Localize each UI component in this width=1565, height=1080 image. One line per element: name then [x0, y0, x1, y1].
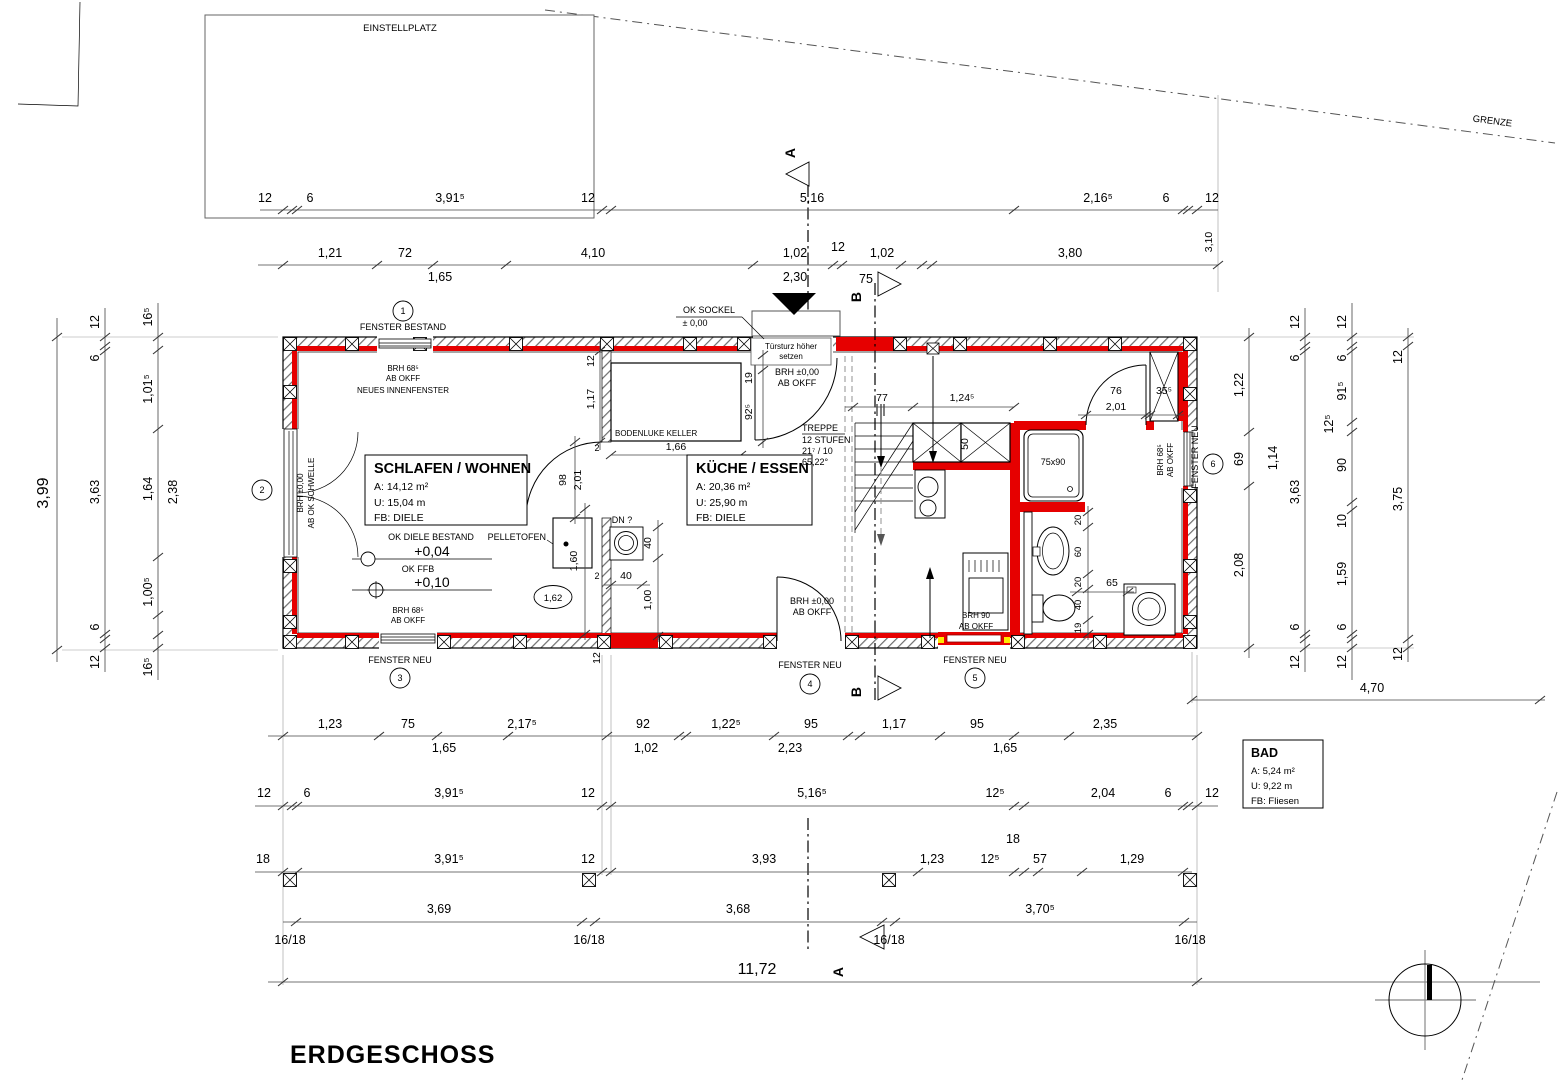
dim-label: 18 [256, 852, 270, 866]
dim-label: 1,02 [634, 741, 658, 755]
room-perimeter: U: 9,22 m [1251, 781, 1292, 792]
dim-label: 2,38 [166, 480, 180, 504]
dim-label: 12 [581, 191, 595, 205]
stair-label: 12 STUFEN [802, 435, 851, 445]
sill-label: BRH ±0,00 [775, 367, 819, 377]
dim-label: 16⁵ [141, 307, 155, 326]
room-floor: FB: DIELE [374, 512, 424, 524]
dim-total-label: 11,72 [738, 961, 777, 978]
dim-label: 12 [585, 355, 597, 367]
dim-label: 3,63 [1288, 480, 1302, 504]
window-1 [379, 339, 431, 348]
window-3 [381, 634, 435, 643]
dim-label: 1,65 [432, 741, 456, 755]
dim-label: 40 [642, 537, 654, 549]
section-b-label: B [848, 687, 864, 697]
sill-label: AB OKFF [1166, 443, 1175, 477]
dim-label: 40 [620, 570, 632, 582]
dim-label: 1,21 [318, 246, 342, 260]
dim-label: 95 [970, 717, 984, 731]
dim-label: 6 [1288, 623, 1302, 630]
dim-label: 3,93 [752, 852, 776, 866]
sill-label: BRH 90 [962, 611, 991, 620]
sill-label: AB OK SCHWELLE [307, 458, 316, 529]
dim-label: 2,23 [778, 741, 802, 755]
dim-label: 1,22⁵ [711, 717, 741, 731]
dim-label: 92 [636, 717, 650, 731]
marker-number: 1 [400, 306, 405, 316]
dim-label: 3,63 [88, 480, 102, 504]
new-inner-window-label: NEUES INNENFENSTER [357, 386, 449, 395]
dim-label: 12 [258, 191, 272, 205]
dim-label: 1,65 [428, 270, 452, 284]
plinth-label: ± 0,00 [683, 318, 708, 328]
dim-label: 12 [1288, 655, 1302, 669]
dim-label: 1,66 [666, 441, 687, 453]
post-size-label: 16/18 [573, 933, 604, 947]
dim-label: 1,24⁵ [950, 392, 975, 404]
dim-label: 50 [959, 438, 971, 450]
sill-label: AB OKFF [793, 607, 832, 617]
dim-label: 76 [1110, 385, 1122, 397]
dim-label: 1,65 [993, 741, 1017, 755]
dim-label: 12 [1205, 191, 1219, 205]
room-title: KÜCHE / ESSEN [696, 460, 809, 477]
dim-label: 1,22 [1232, 373, 1246, 397]
room-perimeter: U: 25,90 m [696, 497, 748, 509]
lintel-note: setzen [779, 352, 803, 361]
dim-label: 6 [88, 354, 102, 361]
grenze-line-top [545, 10, 1555, 143]
dim-label: 6 [88, 623, 102, 630]
dim-label: 6 [304, 786, 311, 800]
sill-label: BRH 68⁵ [387, 364, 418, 373]
shower-size-label: 75x90 [1041, 457, 1066, 467]
dim-label: 19 [1073, 623, 1084, 634]
dim-label: 3,68 [726, 902, 750, 916]
dim-label: 1,62 [544, 593, 563, 604]
dim-label: 3,80 [1058, 246, 1082, 260]
dim-label: 12 [831, 240, 845, 254]
dim-label: 12⁵ [1322, 414, 1336, 433]
dim-label: 10 [1335, 514, 1349, 528]
dim-label: 6 [1165, 786, 1172, 800]
dim-label: 5,16 [800, 191, 824, 205]
section-b-arrow-bottom [878, 676, 901, 700]
post-size-label: 16/18 [1174, 933, 1205, 947]
marker-number: 6 [1210, 459, 1215, 469]
dim-label: 1,17 [882, 717, 906, 731]
dim-label: 98 [557, 474, 569, 486]
window-type-label: FENSTER BESTAND [360, 322, 447, 332]
sheet-title: ERDGESCHOSS [290, 1041, 495, 1069]
sill-label: AB OKFF [391, 616, 425, 625]
level-value: +0,04 [414, 543, 450, 559]
post-size-label: 16/18 [274, 933, 305, 947]
dim-label: 91⁵ [1335, 381, 1349, 400]
einstellplatz-outline [205, 15, 594, 218]
dim-label: 12⁵ [985, 786, 1004, 800]
dim-label: 2,01 [1106, 401, 1127, 413]
window-type-label: FENSTER NEU [943, 655, 1007, 665]
level-value: +0,10 [414, 574, 450, 590]
lintel-note: Türsturz höher [765, 342, 817, 351]
dim-label: 69 [1232, 452, 1246, 466]
window-5-new-red [938, 632, 1010, 645]
dim-label: 65 [1106, 577, 1118, 589]
dim-label: 20 [1073, 515, 1084, 526]
site-boundary: GRENZE EINSTELLPLATZ [18, 2, 1557, 1080]
dim-label: 3,91⁵ [434, 852, 464, 866]
window-type-label: FENSTER NEU [368, 655, 432, 665]
dim-label: 57 [1033, 852, 1047, 866]
room-area: A: 5,24 m² [1251, 766, 1295, 777]
dim-label: 1,00 [642, 590, 654, 611]
dim-label: 3,99 [35, 477, 52, 508]
dim-label: 4,70 [1360, 681, 1384, 695]
sill-label: AB OKFF [778, 378, 817, 388]
dim-label: 6 [307, 191, 314, 205]
stair-label: 21⁷ / 10 [802, 446, 833, 456]
dim-label: 90 [1335, 458, 1349, 472]
stair-label: TREPPE [802, 423, 838, 433]
floorplan-drawing: GRENZE EINSTELLPLATZ [0, 0, 1565, 1080]
dim-label: 95 [804, 717, 818, 731]
sink [1037, 527, 1069, 575]
dim-label: 3,70⁵ [1025, 902, 1055, 916]
dim-label: 12 [1335, 315, 1349, 329]
dim-label: 75 [859, 272, 873, 286]
dim-label: 12 [257, 786, 271, 800]
dim-label: 12 [1391, 647, 1405, 661]
dim-label: 3,10 [1203, 232, 1215, 253]
section-b-arrow-top [878, 272, 901, 296]
dim-label: 1,00⁵ [141, 577, 155, 607]
dim-label: 1,23 [920, 852, 944, 866]
dim-label: 12 [88, 315, 102, 329]
dim-label: 16⁵ [141, 657, 155, 676]
dim-label: 12 [1205, 786, 1219, 800]
dim-label: 2,01 [572, 470, 584, 491]
dim-label: 6 [1335, 623, 1349, 630]
dim-label: 1,14 [1266, 446, 1280, 470]
dim-label: 92⁵ [743, 404, 755, 420]
stair-note: TREPPE 12 STUFEN 21⁷ / 10 65,22° [802, 423, 851, 467]
dim-label: 1,60 [568, 551, 580, 572]
dim-label: 2,04 [1091, 786, 1115, 800]
sill-label: BRH ±0,00 [790, 596, 834, 606]
dim-label: 6 [1335, 354, 1349, 361]
pellet-stove-label: PELLETOFEN [488, 532, 546, 542]
dim-label: 72 [398, 246, 412, 260]
dim-label: 3,91⁵ [434, 786, 464, 800]
dim-label: 18 [1006, 832, 1020, 846]
section-b-label: B [848, 292, 864, 302]
section-a-arrow-top [786, 162, 809, 186]
dim-label: 12 [1288, 315, 1302, 329]
dim-label: 5,16⁵ [797, 786, 827, 800]
section-a-label: A [782, 148, 798, 158]
level-marker [361, 552, 375, 566]
dim-label: 4,10 [581, 246, 605, 260]
dim-label: 77 [876, 392, 888, 404]
bath-partition [1024, 512, 1032, 634]
entry-stoop [752, 311, 840, 336]
boundary-corner-left [18, 2, 80, 106]
dim-label: 1,64 [141, 477, 155, 501]
drain-label: DN ? [612, 515, 633, 525]
dim-label: 2 [594, 571, 599, 581]
dim-label: 20 [1073, 577, 1084, 588]
room-area: A: 20,36 m² [696, 481, 751, 493]
marker-number: 4 [807, 679, 812, 689]
room-title: SCHLAFEN / WOHNEN [374, 461, 531, 477]
dim-label: 2,30 [783, 270, 807, 284]
opening-door4 [777, 630, 845, 649]
marker-number: 5 [972, 673, 977, 683]
dim-label: 12 [591, 652, 603, 664]
dim-label: 35⁵ [1156, 385, 1172, 397]
toilet [1032, 595, 1043, 622]
floor-hatch-label: BODENLUKE KELLER [615, 429, 697, 438]
dim-label: 2,35 [1093, 717, 1117, 731]
dim-label: 2,16⁵ [1083, 191, 1113, 205]
einstellplatz-label: EINSTELLPLATZ [363, 23, 437, 34]
level-label: OK FFB [402, 564, 435, 574]
sill-label: BRH 68⁵ [1156, 444, 1165, 475]
north-needle [1427, 965, 1432, 1000]
dim-label: 60 [1073, 547, 1084, 558]
room-floor: FB: DIELE [696, 512, 746, 524]
dim-label: 1,29 [1120, 852, 1144, 866]
window-type-label: FENSTER NEU [1190, 425, 1200, 489]
dim-label: 40 [1073, 600, 1084, 611]
dim-label: 1,23 [318, 717, 342, 731]
marker-number: 2 [259, 485, 264, 495]
sill-label: BRH 68⁵ [392, 606, 423, 615]
stair-label: 65,22° [802, 457, 829, 467]
dim-label: 6 [1163, 191, 1170, 205]
post-size-label: 16/18 [873, 933, 904, 947]
floorplan-sheet: GRENZE EINSTELLPLATZ [0, 0, 1565, 1080]
dim-label: 1,17 [585, 389, 597, 410]
window-type-label: FENSTER NEU [778, 660, 842, 670]
dim-label: 1,59 [1335, 562, 1349, 586]
sill-label: AB OKFF [959, 622, 993, 631]
dim-label: 2,08 [1232, 553, 1246, 577]
sill-label: AB OKFF [386, 374, 420, 383]
level-label: OK DIELE BESTAND [388, 532, 474, 542]
dim-label: 6 [1288, 354, 1302, 361]
north-indicator [1375, 950, 1476, 1050]
dim-label: 2 [594, 443, 599, 453]
dim-label: 12 [1391, 350, 1405, 364]
room-title: BAD [1251, 746, 1278, 760]
dim-label: 12 [1335, 655, 1349, 669]
dim-label: 1,02 [870, 246, 894, 260]
dim-label: 3,75 [1391, 487, 1405, 511]
dim-label: 75 [401, 717, 415, 731]
room-perimeter: U: 15,04 m [374, 497, 426, 509]
dim-label: 12⁵ [980, 852, 999, 866]
grenze-label: GRENZE [1472, 114, 1513, 130]
dim-label: 3,69 [427, 902, 451, 916]
dim-label: 1,01⁵ [141, 374, 155, 404]
dim-label: 12 [88, 655, 102, 669]
plinth-label: OK SOCKEL [683, 305, 735, 315]
dim-label: 12 [581, 786, 595, 800]
dim-label: 2,17⁵ [507, 717, 537, 731]
section-a-label: A [830, 967, 846, 977]
dim-label: 3,91⁵ [435, 191, 465, 205]
marker-number: 3 [397, 673, 402, 683]
dim-label: 19 [743, 372, 755, 384]
room-floor: FB: Fliesen [1251, 796, 1299, 807]
interior-wall-top [602, 351, 611, 442]
dim-label: 1,02 [783, 246, 807, 260]
dim-label: 12 [581, 852, 595, 866]
grenze-line-right [1462, 792, 1557, 1080]
sill-label: BRH ±0,00 [296, 473, 305, 513]
room-area: A: 14,12 m² [374, 481, 429, 493]
